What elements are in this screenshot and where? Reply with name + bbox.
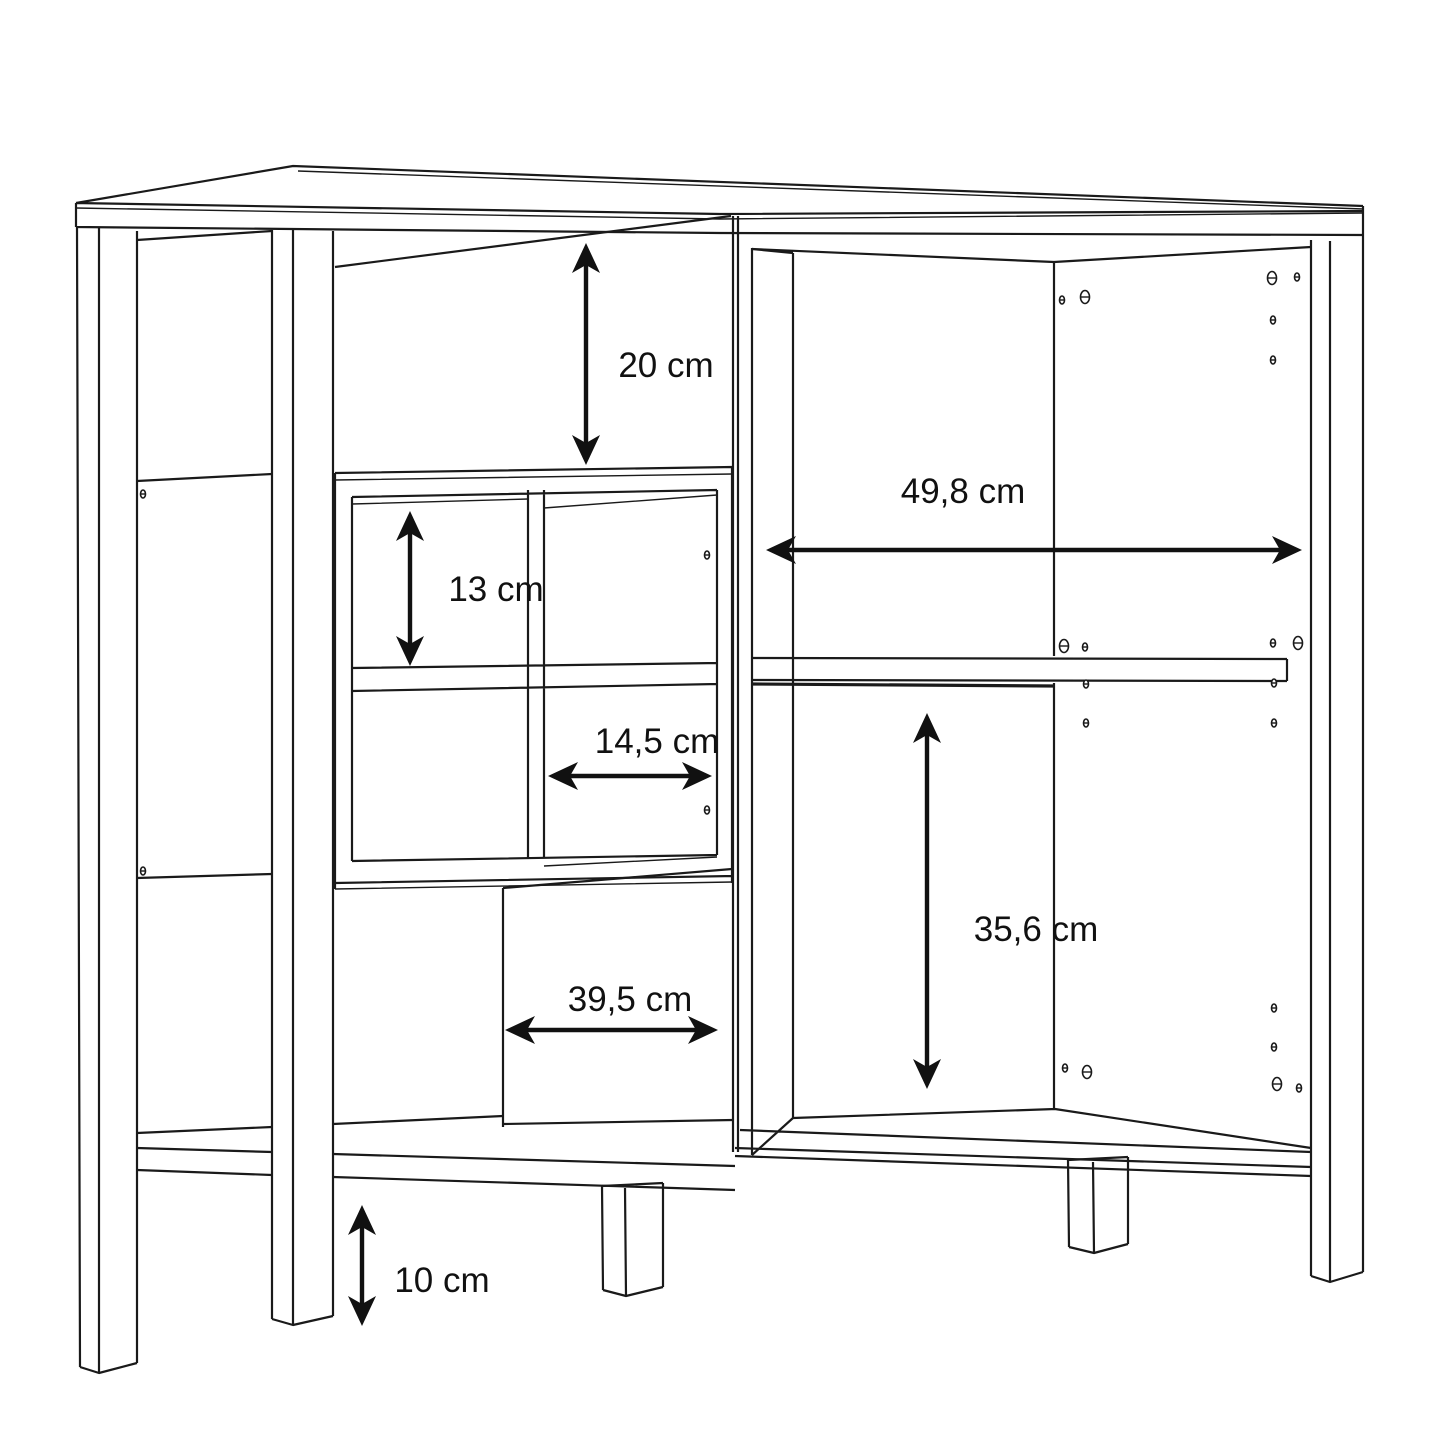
dimension-annotations: 20 cm13 cm49,8 cm14,5 cm35,6 cm39,5 cm10… [348, 243, 1302, 1326]
screw-hole-icon [1273, 1078, 1282, 1091]
screw-hole-icon [1063, 1064, 1068, 1072]
dimension-label-cube-cell-width: 14,5 cm [595, 722, 720, 761]
dimension-label-right-compartment-height: 35,6 cm [974, 910, 1099, 949]
screw-hole-icon [1268, 272, 1277, 285]
dimension-cube-cell-height: 13 cm [396, 511, 544, 666]
dimension-leg-height: 10 cm [348, 1205, 490, 1326]
back-left-leg [272, 229, 333, 1325]
dimension-label-top-compartment-height: 20 cm [618, 346, 713, 385]
diagram-canvas: 20 cm13 cm49,8 cm14,5 cm35,6 cm39,5 cm10… [0, 0, 1445, 1445]
screw-hole-icon [1295, 273, 1300, 281]
left-side-panel-lines [137, 474, 272, 878]
screw-hole-icon [705, 551, 710, 559]
screw-hole-icon [1081, 291, 1090, 304]
middle-right-foot [1068, 1157, 1128, 1253]
screw-hole-icon [1083, 1066, 1092, 1079]
screw-hole-icon [1294, 637, 1303, 650]
dimension-right-compartment-width: 49,8 cm [766, 472, 1302, 564]
dimension-bottom-compartment-width: 39,5 cm [505, 980, 718, 1044]
screw-hole-icon [1084, 680, 1089, 688]
front-left-leg [77, 227, 137, 1373]
dimension-label-leg-height: 10 cm [394, 1261, 489, 1300]
screw-hole-icon [1271, 639, 1276, 647]
top-panel [76, 166, 1363, 235]
screw-hole-icon [1060, 640, 1069, 653]
cabinet-line-art [76, 166, 1363, 1373]
middle-left-foot [602, 1183, 663, 1296]
screw-hole-icon [1271, 316, 1276, 324]
screw-hole-icon [1271, 356, 1276, 364]
dimension-top-compartment-height: 20 cm [572, 243, 714, 465]
screw-hole-icon [141, 490, 146, 498]
screw-hole-icon [1297, 1084, 1302, 1092]
shelf-shadow [752, 684, 1054, 686]
screw-hole-icon [141, 867, 146, 875]
right-compartment-shelf [752, 658, 1287, 681]
screw-hole-icon [1272, 1043, 1277, 1051]
dimension-label-right-compartment-width: 49,8 cm [901, 472, 1026, 511]
screw-hole-icon [705, 806, 710, 814]
interior-top-edges [137, 216, 1311, 267]
screw-hole-icon [1083, 643, 1088, 651]
bottom-board [137, 1116, 1311, 1190]
screw-hole-icon [1272, 719, 1277, 727]
screw-hole-icon [1060, 296, 1065, 304]
front-right-leg [1311, 235, 1363, 1282]
dimension-label-bottom-compartment-width: 39,5 cm [568, 980, 693, 1019]
screw-hole-icon [1272, 1004, 1277, 1012]
screw-hole-icon [1084, 719, 1089, 727]
dimension-right-compartment-height: 35,6 cm [913, 713, 1098, 1089]
screw-hole-icon [1272, 679, 1277, 687]
dimension-label-cube-cell-height: 13 cm [448, 570, 543, 609]
cube-shelf-unit [335, 467, 732, 889]
furniture-dimension-diagram: 20 cm13 cm49,8 cm14,5 cm35,6 cm39,5 cm10… [0, 0, 1445, 1445]
dimension-cube-cell-width: 14,5 cm [548, 722, 719, 790]
cube-back-edges [335, 474, 732, 889]
